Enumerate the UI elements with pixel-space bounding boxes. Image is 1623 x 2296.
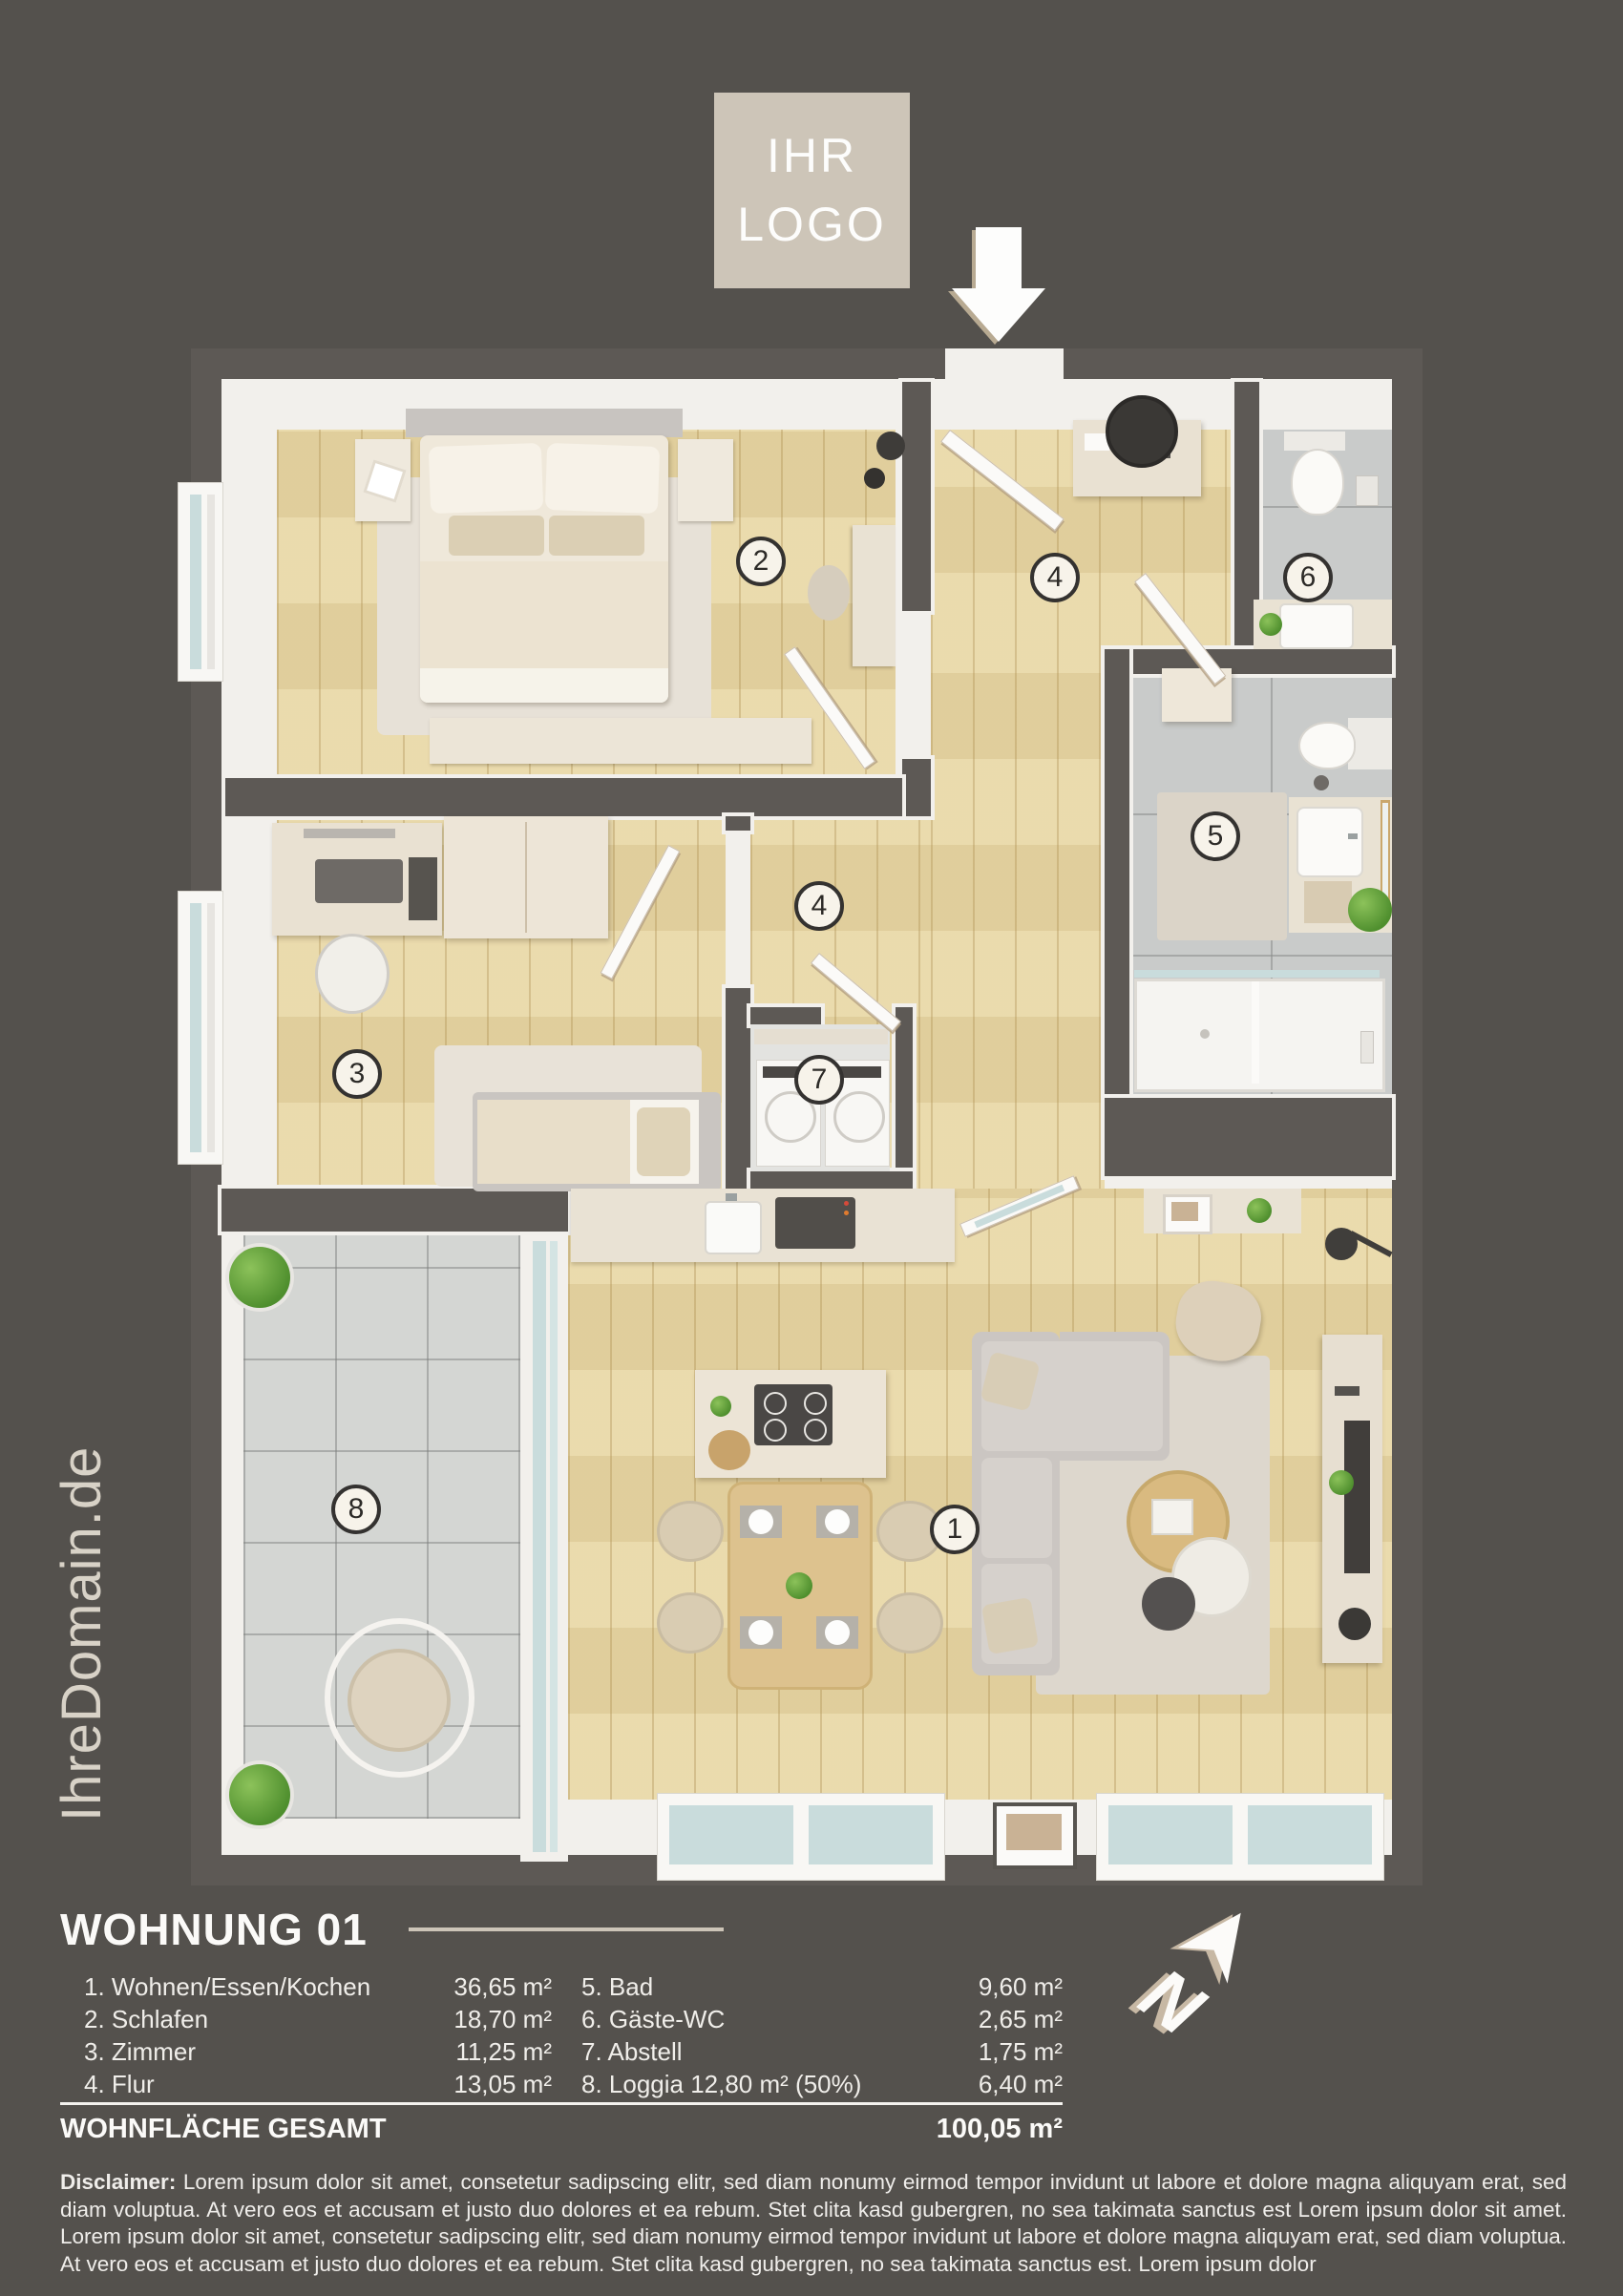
burner (764, 1392, 787, 1415)
window-glass (190, 903, 201, 1152)
wall-abstell-top (750, 1007, 821, 1024)
tv (1344, 1421, 1370, 1573)
legend-room-area: 11,25 m² (289, 2037, 552, 2067)
kitchen-sink (705, 1201, 762, 1254)
window-sill (207, 903, 215, 1152)
wall-schlafen-flur-lower (902, 759, 931, 816)
legend-row: 1. Wohnen/Essen/Kochen 36,65 m² 5. Bad 9… (60, 1972, 1063, 2003)
desk-chair (315, 934, 390, 1014)
shower-tray (1134, 979, 1385, 1092)
room-badge-zimmer: 3 (332, 1049, 382, 1099)
entrance-opening (945, 348, 1064, 430)
dressing-table (853, 525, 896, 666)
legend-room-area: 1,75 m² (891, 2037, 1063, 2067)
burner (764, 1419, 787, 1442)
kitchen-counter (571, 1189, 955, 1262)
bedroom-sideboard (430, 718, 811, 764)
sofa-pillow (981, 1597, 1039, 1654)
badge-label: 6 (1300, 561, 1317, 594)
legend-block: 1. Wohnen/Essen/Kochen 36,65 m² 5. Bad 9… (60, 1963, 1063, 2163)
island-plant (710, 1396, 731, 1417)
plate (825, 1509, 850, 1534)
toilet-paper-holder (1356, 475, 1379, 506)
toilet-brush (1314, 775, 1329, 790)
hanging-chair (325, 1618, 474, 1778)
badge-label: 2 (753, 545, 769, 578)
hanging-chair-cushion (348, 1649, 451, 1752)
dining-chair (657, 1592, 724, 1654)
bed-duvet (420, 561, 668, 668)
window-glass (1108, 1805, 1233, 1864)
double-bed (420, 435, 668, 703)
single-bed-duvet (477, 1100, 630, 1184)
built-in-oven (775, 1197, 855, 1249)
room-badge-bad: 5 (1191, 811, 1240, 861)
bed-accent-pillow (449, 516, 544, 556)
shower-divider (1252, 981, 1259, 1084)
window-sill (207, 495, 215, 669)
burner (804, 1392, 827, 1415)
dining-chair (876, 1592, 943, 1654)
wall-zimmer-flur-upper (726, 816, 750, 831)
bed-accent-pillow (549, 516, 644, 556)
monitor-icon (304, 829, 395, 838)
living-console (1144, 1189, 1301, 1233)
pier-picture (1006, 1814, 1062, 1850)
oven-indicator (844, 1201, 849, 1206)
bed-headboard (406, 409, 683, 437)
legend-room-area: 9,60 m² (891, 1972, 1063, 2002)
dining-table (727, 1482, 873, 1690)
loggia-plant (229, 1764, 290, 1825)
badge-label: 4 (1047, 561, 1064, 594)
legend-room-label: 7. Abstell (581, 2037, 683, 2067)
kitchen-island (695, 1370, 886, 1478)
shower-drain (1200, 1029, 1210, 1039)
legend-room-area: 2,65 m² (891, 2005, 1063, 2034)
shower-glass (1134, 970, 1380, 978)
pier-picture-frame (993, 1802, 1077, 1869)
placemat (816, 1616, 858, 1649)
photo-frame (363, 459, 406, 502)
dining-chair (657, 1501, 724, 1562)
window-glass (1248, 1805, 1372, 1864)
title-rule (409, 1927, 724, 1931)
total-row: WOHNFLÄCHE GESAMT 100,05 m² (60, 2114, 1063, 2152)
table-plant (786, 1572, 812, 1599)
legend-room-area: 6,40 m² (891, 2070, 1063, 2099)
legend-room-label: 3. Zimmer (84, 2037, 196, 2067)
north-letter: N (1126, 1951, 1220, 2052)
tv-plant (1329, 1470, 1354, 1495)
disclaimer-text: Lorem ipsum dolor sit amet, consetetur s… (60, 2170, 1567, 2276)
wall-bad-flur (1105, 649, 1129, 1098)
wardrobe-seam (525, 822, 527, 933)
badge-label: 3 (349, 1058, 366, 1090)
desk (272, 823, 442, 936)
window-left-bedroom (178, 482, 223, 682)
legend-room-label: 5. Bad (581, 1972, 653, 2002)
pendant-lamp-icon (864, 468, 885, 489)
desk-drawer (409, 857, 437, 920)
disclaimer: Disclaimer: Lorem ipsum dolor sit amet, … (60, 2169, 1567, 2278)
placemat (740, 1616, 782, 1649)
wall-loggia-top (221, 1189, 568, 1232)
loggia-glass-pane (550, 1241, 558, 1852)
badge-label: 4 (811, 890, 828, 922)
window-glass (190, 495, 201, 669)
legend-room-label: 6. Gäste-WC (581, 2005, 725, 2034)
room-badge-abstell: 7 (794, 1055, 844, 1105)
coffee-table-dark (1142, 1577, 1195, 1631)
legend-row: 3. Zimmer 11,25 m² 7. Abstell 1,75 m² (60, 2037, 1063, 2068)
coffee-tray (1151, 1499, 1193, 1535)
floor-flur-mid (931, 659, 1105, 1189)
console-picture (1171, 1202, 1198, 1221)
room-badge-flur-mid: 4 (794, 881, 844, 931)
sofa-cushion (981, 1458, 1052, 1558)
badge-label: 5 (1208, 820, 1224, 853)
bed-foot (420, 668, 668, 703)
bed-pillow (545, 443, 660, 514)
bath-faucet (1348, 833, 1358, 839)
legend-room-area: 18,70 m² (289, 2005, 552, 2034)
nightstand (355, 439, 411, 521)
wardrobe (444, 816, 608, 938)
north-arrow: N N (1115, 1895, 1268, 2067)
hand-shower (1360, 1031, 1374, 1064)
loggia-glass-wall (520, 1232, 568, 1862)
bath-toilet (1298, 722, 1356, 769)
badge-label: 1 (947, 1513, 963, 1546)
wc-basin-counter (1254, 600, 1392, 649)
room-badge-gaeste-wc: 6 (1283, 553, 1333, 602)
wc-toilet-tank (1284, 432, 1345, 451)
page: IHR LOGO IhreDomain.de (0, 0, 1623, 2296)
page-title: WOHNUNG 01 (60, 1904, 368, 1955)
bath-plant (1348, 888, 1392, 932)
wall-schlafen-zimmer (225, 778, 902, 816)
single-bed-pillow (637, 1107, 690, 1176)
wc-toilet (1291, 449, 1344, 516)
outer-wall-top (191, 348, 1423, 379)
room-badge-flur-top: 4 (1030, 553, 1080, 602)
wall-abstell-right (896, 1007, 913, 1189)
plate (825, 1620, 850, 1645)
plate (748, 1620, 773, 1645)
badge-label: 8 (348, 1493, 365, 1526)
dressing-stool (808, 565, 850, 621)
single-bed (473, 1092, 721, 1191)
window-left-zimmer (178, 891, 223, 1165)
placemat (816, 1506, 858, 1538)
total-area: 100,05 m² (937, 2114, 1063, 2145)
tv-sideboard (1322, 1335, 1382, 1663)
legend-room-label: 2. Schlafen (84, 2005, 208, 2034)
legend-room-area: 36,65 m² (289, 1972, 552, 2002)
window-bottom-left (657, 1793, 945, 1881)
total-rule (60, 2102, 1063, 2105)
legend-room-area: 13,05 m² (289, 2070, 552, 2099)
bath-basin (1296, 807, 1363, 877)
loggia-plant (229, 1247, 290, 1308)
plate (748, 1509, 773, 1534)
office-chair (1106, 395, 1178, 468)
desk-pad (315, 859, 403, 903)
remote (1335, 1386, 1360, 1396)
badge-label: 7 (811, 1064, 828, 1096)
nightstand (678, 439, 733, 521)
speaker (1338, 1608, 1371, 1640)
oven-indicator (844, 1211, 849, 1215)
wall-schlafen-flur-upper (902, 382, 931, 611)
cooktop (754, 1384, 833, 1445)
wall-bad-living (1105, 1098, 1392, 1176)
burner (804, 1419, 827, 1442)
placemat (740, 1506, 782, 1538)
bed-pillow (429, 443, 543, 514)
window-glass (669, 1805, 793, 1864)
cutting-board (708, 1430, 750, 1470)
room-badge-wohnen: 1 (930, 1505, 980, 1554)
legend-row: 4. Flur 13,05 m² 8. Loggia 12,80 m² (50%… (60, 2070, 1063, 2100)
legend-room-label: 8. Loggia 12,80 m² (50%) (581, 2070, 861, 2099)
abstell-shelf (754, 1029, 888, 1044)
window-glass (809, 1805, 933, 1864)
kitchen-faucet (726, 1193, 737, 1201)
wall-zimmer-flur-lower (726, 988, 750, 1189)
wc-plant (1259, 613, 1282, 636)
legend-row: 2. Schlafen 18,70 m² 6. Gäste-WC 2,65 m² (60, 2005, 1063, 2035)
wall-abstell-bottom (750, 1171, 913, 1189)
legend-room-label: 4. Flur (84, 2070, 155, 2099)
outer-wall-right (1392, 348, 1423, 1885)
console-plant (1247, 1198, 1272, 1223)
pendant-lamp-icon (876, 432, 905, 460)
bath-towel (1304, 881, 1352, 923)
console-picture-frame (1163, 1194, 1212, 1234)
room-badge-loggia: 8 (331, 1485, 381, 1534)
dryer-door (833, 1091, 885, 1143)
window-bottom-right (1096, 1793, 1384, 1881)
disclaimer-label: Disclaimer: (60, 2170, 176, 2194)
room-badge-schlafen: 2 (736, 537, 786, 586)
total-label: WOHNFLÄCHE GESAMT (60, 2114, 387, 2144)
loggia-glass-pane (533, 1241, 546, 1852)
wc-basin (1279, 603, 1354, 649)
